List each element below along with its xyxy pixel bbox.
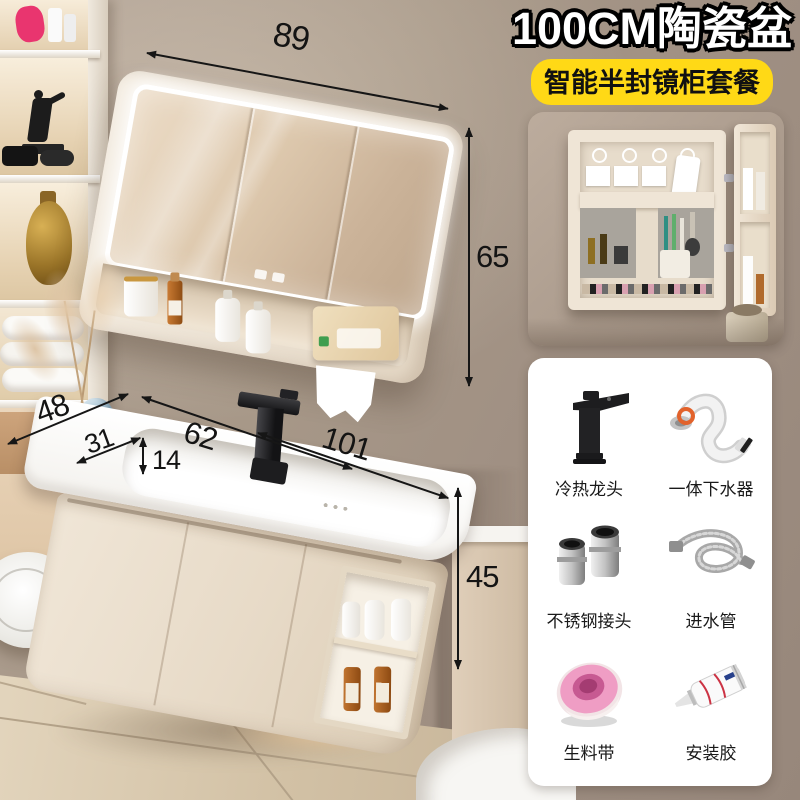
door-bottle [743, 168, 753, 210]
dark-decor-lens [40, 150, 74, 166]
accessory-grid: 冷热龙头 一体下水器 [528, 368, 772, 764]
pink-towel [14, 4, 47, 44]
figurine-arm [44, 91, 66, 107]
inset-hinge [724, 174, 734, 182]
amber-dropper-bottle [167, 280, 182, 324]
door-bottle [756, 172, 765, 210]
paper-roll [391, 599, 411, 641]
cosmetic-jar [614, 246, 628, 264]
accessory-item-faucet: 冷热龙头 [533, 368, 645, 500]
product-subtitle-badge: 智能半封镜柜套餐 [531, 59, 773, 105]
shelf-niche [0, 0, 88, 50]
inset-open-door [734, 124, 776, 316]
accessory-item-connector: 不锈钢接头 [533, 500, 645, 632]
open-side-niche [313, 565, 437, 740]
basket-lid [732, 304, 762, 316]
product-title: 100CM陶瓷盆 [504, 4, 800, 54]
faucet-icon [543, 381, 635, 473]
brush-cup [660, 250, 690, 278]
paper-roll [364, 600, 384, 640]
accessory-label: 不锈钢接头 [547, 607, 632, 632]
accessory-item-drain: 一体下水器 [655, 368, 767, 500]
dimension-label: 45 [466, 559, 498, 595]
hook [592, 148, 607, 163]
cabinet-door-seam [153, 522, 189, 705]
card [642, 166, 666, 186]
arrow-line [468, 128, 470, 386]
dropper-cap [170, 272, 179, 281]
lipstick [588, 238, 595, 264]
lipstick [600, 234, 607, 264]
dark-decor-object [2, 146, 38, 166]
shelf-niche [0, 58, 88, 175]
door-shelf-compartment [740, 222, 770, 308]
accessory-label: 进水管 [686, 607, 737, 632]
amber-bottle [374, 667, 391, 713]
mirror-door-seam [327, 127, 360, 301]
bottle [64, 14, 76, 42]
hook [622, 148, 637, 163]
bottle-label [168, 300, 181, 315]
amber-bottle-label [345, 683, 358, 703]
door-amber-item [756, 274, 764, 304]
accessory-label: 安装胶 [686, 739, 737, 764]
pump-top [254, 301, 263, 310]
door-bottle [743, 256, 753, 304]
accessory-label: 一体下水器 [669, 475, 754, 500]
palette-strip [582, 284, 712, 294]
hook [652, 148, 667, 163]
tissue-box-logo [319, 336, 329, 346]
bottle [48, 8, 62, 42]
steel-connector-icon [543, 513, 635, 605]
accessory-item-hose: 进水管 [655, 500, 767, 632]
accessory-item-tape: 生料带 [533, 632, 645, 764]
dimension-label: 65 [476, 239, 508, 275]
tissue-box [313, 306, 399, 360]
title-block: 100CM陶瓷盆 智能半封镜柜套餐 [504, 4, 800, 105]
dimension-label: 14 [152, 445, 180, 476]
amber-bottle [343, 667, 360, 711]
door-shelf-compartment [740, 132, 770, 214]
mirror-touch-icon [254, 269, 267, 280]
amber-bottle-label [376, 683, 389, 703]
inset-floor-shadow [528, 318, 784, 346]
inset-mid-shelf [580, 192, 714, 208]
card [586, 166, 610, 186]
paper-roll [342, 602, 360, 638]
accessory-panel: 冷热龙头 一体下水器 [528, 358, 772, 786]
cabinet-door-seam [271, 544, 307, 727]
card [614, 166, 638, 186]
shelf-board [0, 175, 100, 183]
faucet-base [249, 457, 288, 485]
arrow-line [142, 438, 144, 474]
tissue-box-label [337, 328, 381, 348]
inlet-hose-icon [665, 513, 757, 605]
inset-interior [580, 142, 714, 298]
inset-cabinet-box [568, 130, 726, 310]
accessory-item-glue: 安装胶 [655, 632, 767, 764]
pump-top [223, 290, 232, 299]
drain-pipe-icon [665, 381, 757, 473]
pump-bottle [215, 298, 240, 342]
accessory-label: 生料带 [564, 739, 615, 764]
adhesive-glue-icon [665, 645, 757, 737]
inset-open-cabinet-photo [528, 112, 784, 346]
product-image: 89 65 48 31 62 14 101 45 100CM陶瓷盆 智能半封镜柜… [0, 0, 800, 800]
dimension-label: 89 [270, 15, 312, 60]
shelf-board [0, 50, 100, 58]
pump-bottle [246, 309, 271, 353]
mirror-touch-icon [272, 272, 285, 283]
arrow-line [457, 488, 459, 669]
accessory-label: 冷热龙头 [555, 475, 623, 500]
thread-seal-tape-icon [543, 645, 635, 737]
inset-hinge [724, 244, 734, 252]
